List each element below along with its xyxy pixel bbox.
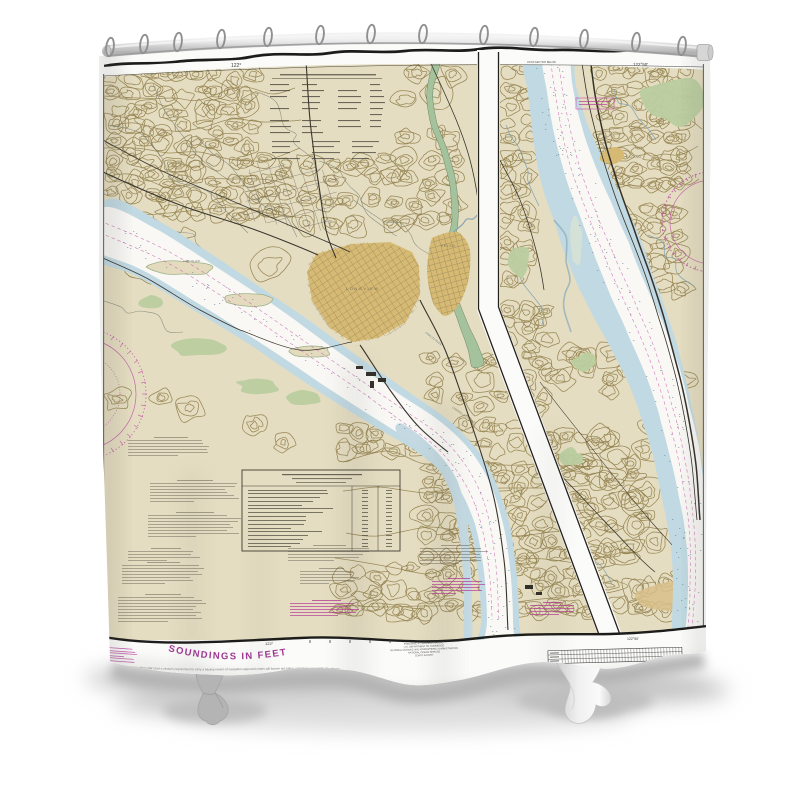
svg-text:122°50': 122°50' xyxy=(627,637,639,641)
svg-text:JOINS SECTION BELOW: JOINS SECTION BELOW xyxy=(527,61,557,64)
svg-text:122°: 122° xyxy=(231,63,241,69)
svg-text:122°50': 122°50' xyxy=(633,62,648,67)
